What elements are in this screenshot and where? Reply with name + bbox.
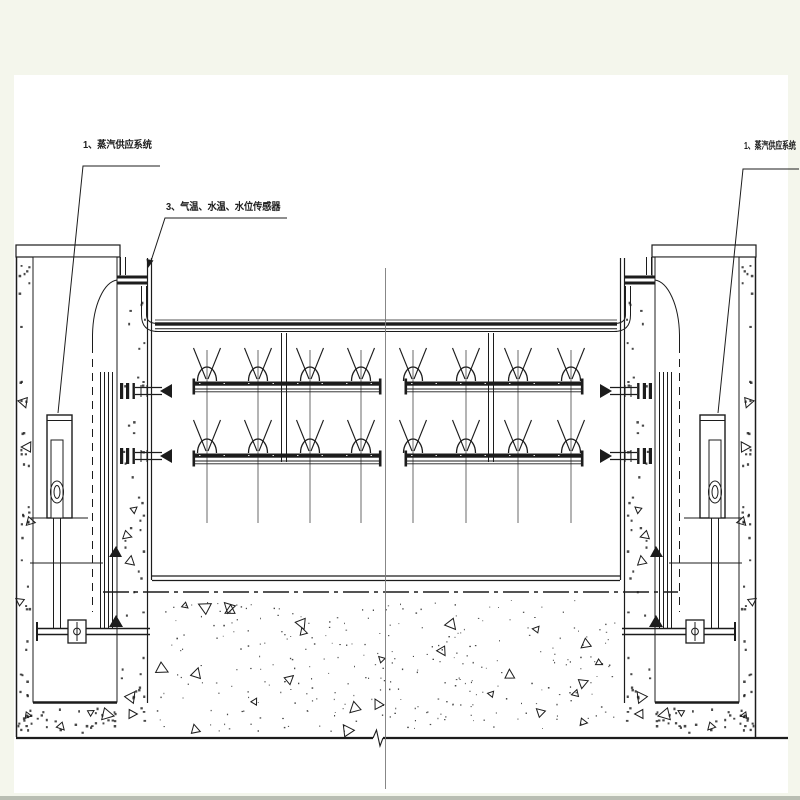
label-steam-supply-left: 1、蒸汽供应系统: [83, 136, 152, 151]
header-pipe: [155, 322, 617, 325]
technical-drawing: [0, 0, 800, 800]
drawing-sheet: 1、蒸汽供应系统 3、气温、水温、水位传感器 1、蒸汽供应系统: [0, 0, 800, 800]
label-steam-supply-right: 1、蒸汽供应系统: [744, 137, 796, 152]
label-sensors: 3、气温、水温、水位传感器: [166, 198, 280, 213]
